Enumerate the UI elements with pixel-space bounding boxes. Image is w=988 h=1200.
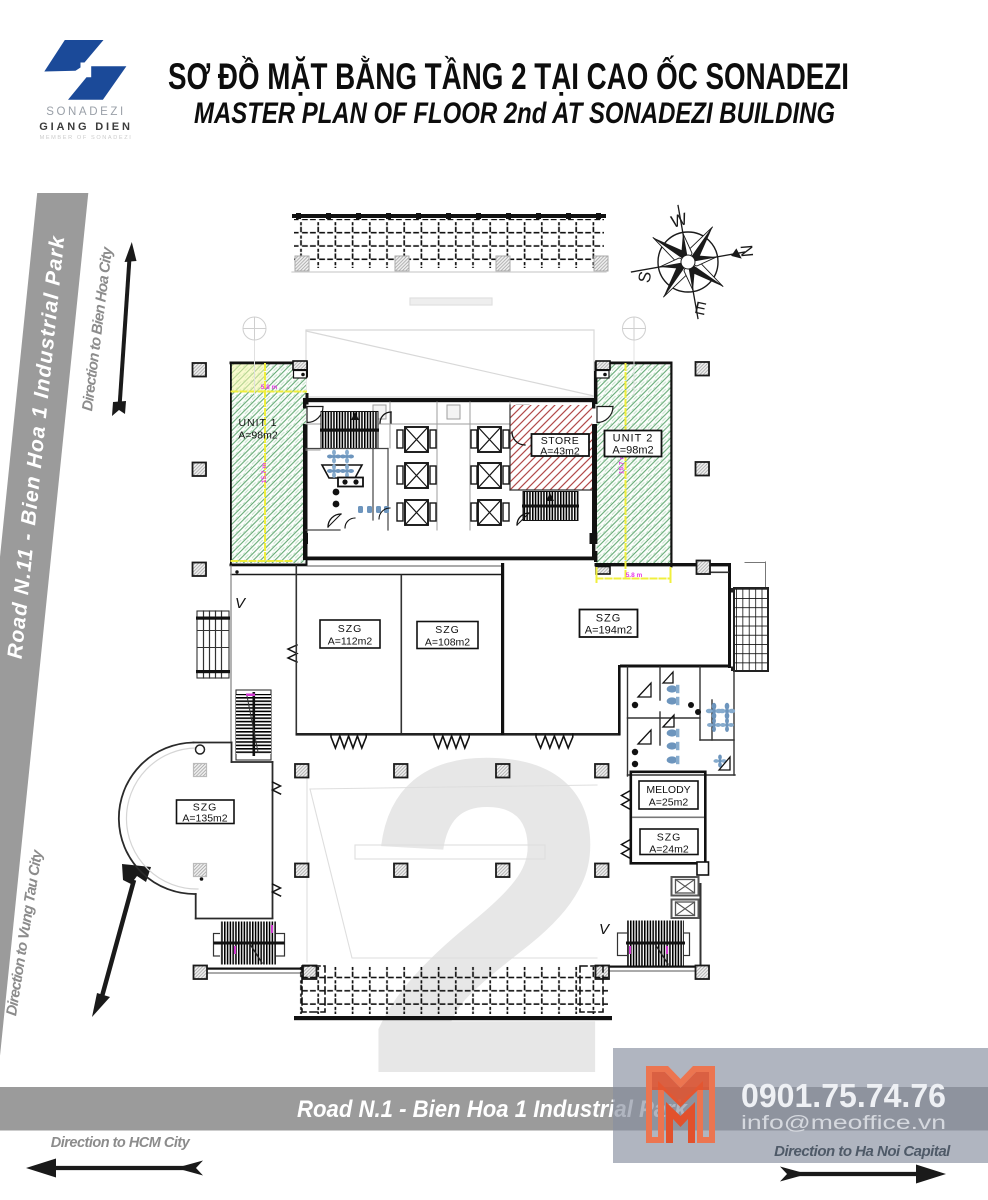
svg-text:SZG: SZG — [338, 623, 363, 635]
svg-text:A=43m2: A=43m2 — [540, 446, 580, 458]
svg-text:A=98m2: A=98m2 — [238, 430, 278, 442]
svg-text:A=194m2: A=194m2 — [585, 625, 632, 637]
svg-text:UNIT 2: UNIT 2 — [613, 433, 654, 445]
svg-text:0901.75.74.76: 0901.75.74.76 — [741, 1077, 946, 1114]
svg-text:SƠ ĐỒ MẶT BẰNG TẦNG 2 TẠI CAO: SƠ ĐỒ MẶT BẰNG TẦNG 2 TẠI CAO ỐC SONADEZ… — [168, 55, 849, 97]
svg-text:A=98m2: A=98m2 — [612, 445, 653, 457]
svg-text:5.8 m: 5.8 m — [626, 572, 643, 579]
svg-text:Direction to HCM City: Direction to HCM City — [51, 1135, 191, 1151]
svg-text:SZG: SZG — [657, 832, 682, 844]
svg-text:MEMBER OF SONADEZI: MEMBER OF SONADEZI — [40, 135, 133, 141]
svg-text:MASTER PLAN OF FLOOR 2nd AT SO: MASTER PLAN OF FLOOR 2nd AT SONADEZI BUI… — [194, 97, 835, 130]
svg-text:5.8 m: 5.8 m — [261, 384, 278, 391]
svg-text:GIANG DIEN: GIANG DIEN — [39, 121, 132, 133]
svg-text:15.7 m: 15.7 m — [261, 463, 268, 483]
svg-text:A=135m2: A=135m2 — [182, 813, 227, 825]
svg-text:A=25m2: A=25m2 — [649, 797, 689, 809]
svg-text:A=24m2: A=24m2 — [649, 844, 689, 856]
svg-text:info@meoffice.vn: info@meoffice.vn — [741, 1112, 946, 1134]
svg-text:SZG: SZG — [596, 613, 622, 625]
svg-text:SONADEZI: SONADEZI — [46, 106, 126, 118]
svg-text:Direction to Ha Noi Capital: Direction to Ha Noi Capital — [774, 1143, 951, 1160]
svg-text:N: N — [737, 244, 757, 258]
svg-text:A=112m2: A=112m2 — [328, 636, 373, 648]
svg-text:A=108m2: A=108m2 — [425, 637, 470, 649]
svg-text:SZG: SZG — [435, 624, 460, 636]
svg-text:UNIT 1: UNIT 1 — [238, 417, 277, 429]
svg-text:MELODY: MELODY — [646, 784, 690, 796]
